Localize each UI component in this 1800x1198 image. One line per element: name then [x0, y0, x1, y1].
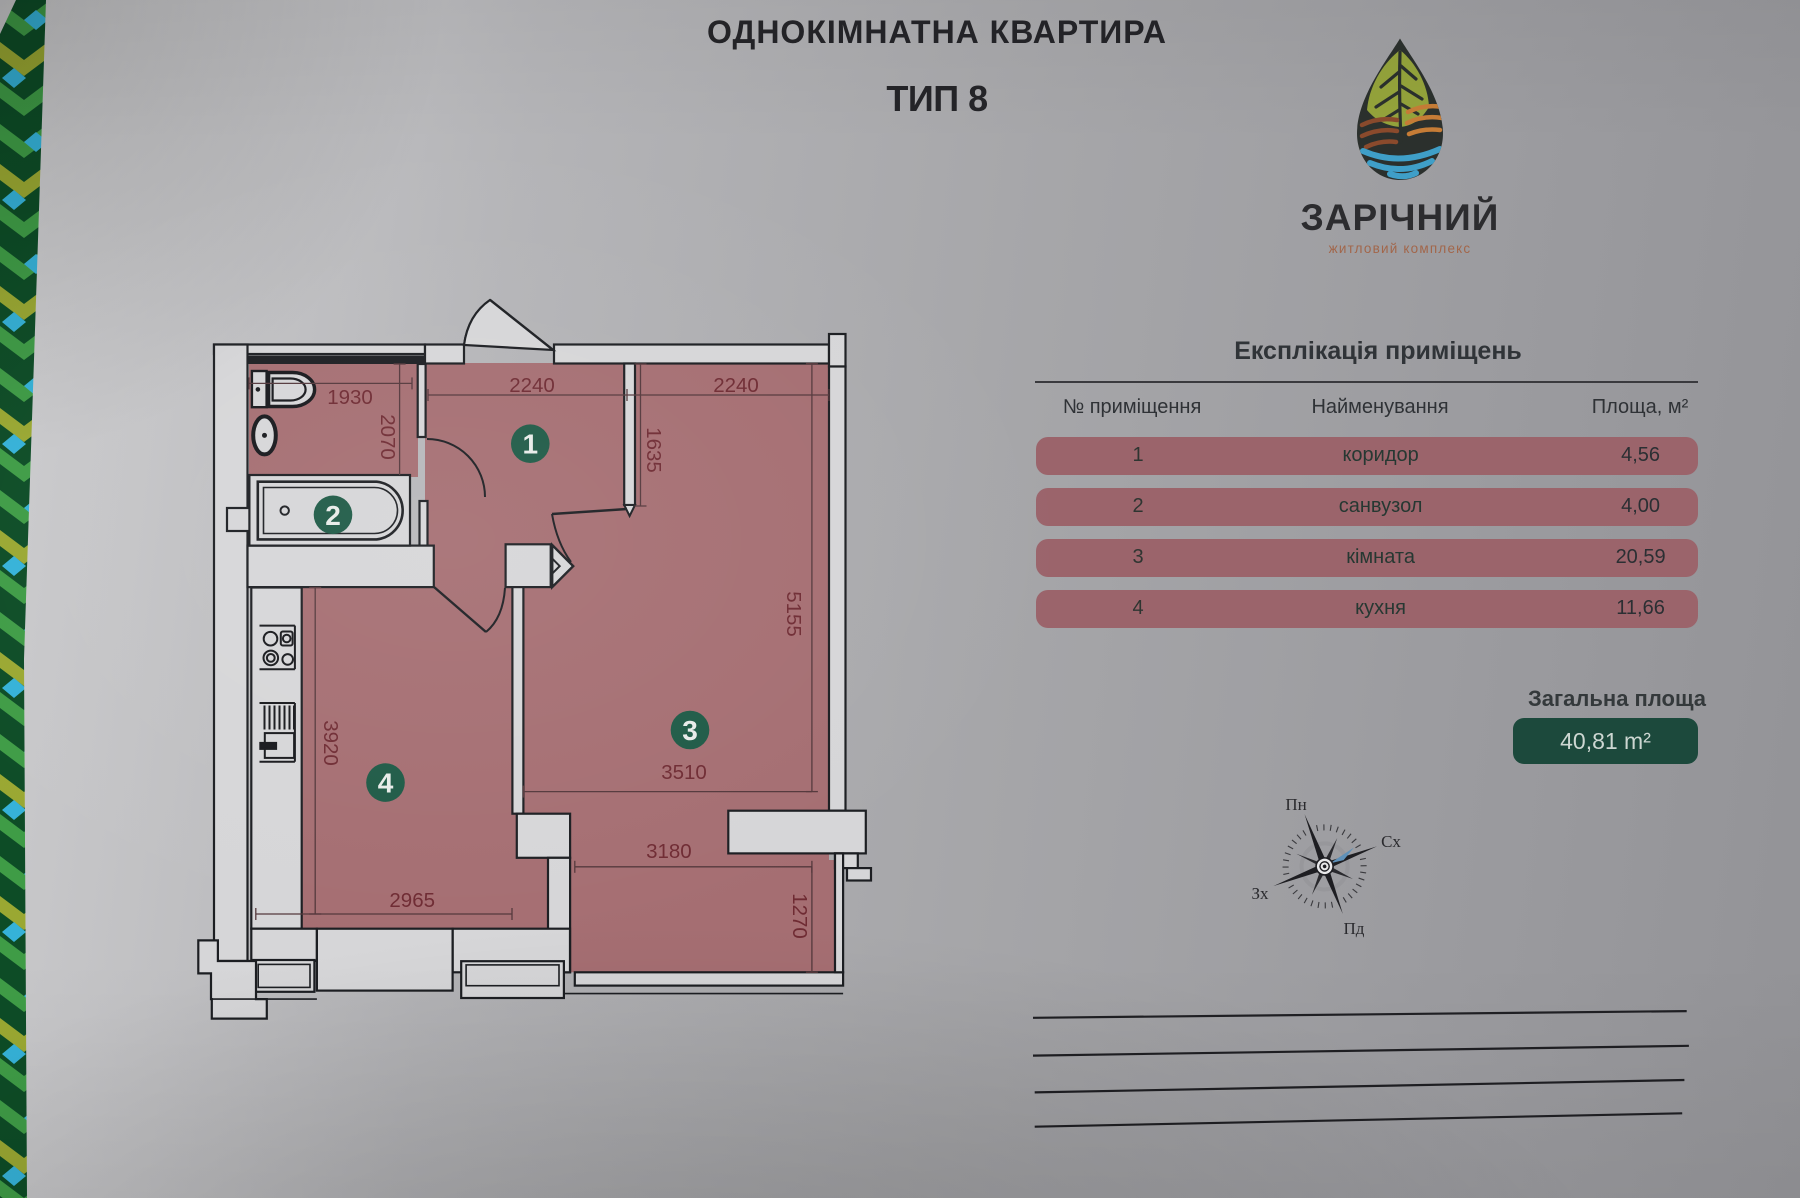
svg-text:Сх: Сх: [1381, 832, 1401, 851]
svg-text:Пд: Пд: [1344, 919, 1365, 938]
svg-text:Зх: Зх: [1251, 884, 1269, 903]
svg-text:3: 3: [682, 715, 698, 746]
svg-text:2240: 2240: [713, 374, 759, 397]
svg-text:3180: 3180: [646, 840, 692, 863]
svg-text:4: 4: [378, 768, 394, 799]
svg-text:5155: 5155: [782, 591, 805, 637]
svg-text:2965: 2965: [389, 889, 435, 912]
svg-text:2070: 2070: [376, 414, 399, 460]
svg-text:1930: 1930: [327, 386, 373, 409]
svg-text:3510: 3510: [661, 761, 707, 784]
svg-text:1: 1: [523, 429, 539, 460]
svg-text:1635: 1635: [642, 427, 665, 473]
svg-text:Пн: Пн: [1285, 795, 1306, 814]
svg-text:2240: 2240: [509, 374, 555, 397]
svg-text:1270: 1270: [788, 893, 811, 939]
svg-text:3920: 3920: [319, 720, 342, 766]
svg-text:2: 2: [325, 500, 341, 531]
